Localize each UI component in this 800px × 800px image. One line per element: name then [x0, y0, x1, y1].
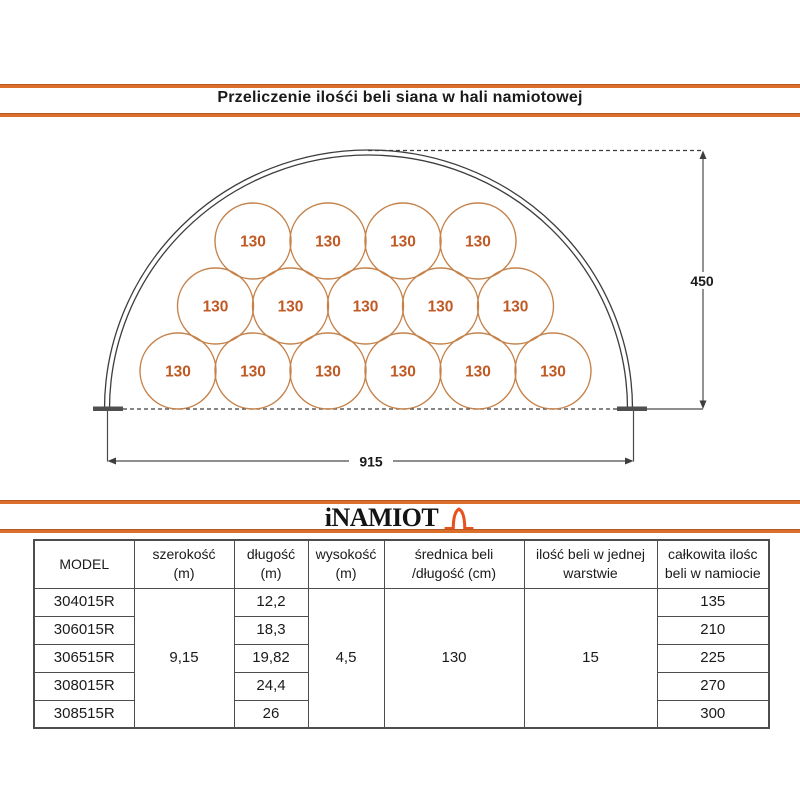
calkowita-cell: 300 — [657, 700, 769, 728]
header-line: beli w namiocie — [658, 564, 769, 583]
width-dimension-label: 915 — [359, 454, 383, 470]
table-row: 304015R 9,15 12,2 4,5 130 15 135 — [34, 588, 769, 616]
hay-bale-label: 130 — [240, 234, 266, 251]
header-line: wysokość — [309, 545, 384, 564]
height-dimension-label: 450 — [690, 273, 714, 289]
header-line: (m) — [309, 564, 384, 583]
srednica-merged-cell: 130 — [384, 588, 524, 728]
tent-cross-section-diagram: 450 915 13013013013013013013013013013013… — [0, 130, 800, 490]
ilosc-warstwa-merged-cell: 15 — [524, 588, 657, 728]
hay-bale-label: 130 — [203, 299, 229, 316]
col-header-wysokosc: wysokość (m) — [308, 540, 384, 588]
foundation-plate-right — [617, 407, 647, 412]
hay-bale-label: 130 — [503, 299, 529, 316]
hay-bale-label: 130 — [240, 364, 266, 381]
banner-rule-bottom — [0, 113, 800, 117]
wysokosc-merged-cell: 4,5 — [308, 588, 384, 728]
col-header-model: MODEL — [34, 540, 134, 588]
hay-bale-label: 130 — [315, 364, 341, 381]
calkowita-cell: 225 — [657, 644, 769, 672]
calkowita-cell: 135 — [657, 588, 769, 616]
logo-rule-bottom — [0, 529, 800, 533]
dlugosc-cell: 24,4 — [234, 672, 308, 700]
col-header-szerokosc: szerokość (m) — [134, 540, 234, 588]
dlugosc-cell: 12,2 — [234, 588, 308, 616]
szerokosc-merged-cell: 9,15 — [134, 588, 234, 728]
header-line: całkowita ilośc — [658, 545, 769, 564]
calkowita-cell: 270 — [657, 672, 769, 700]
header-line: szerokość — [135, 545, 234, 564]
banner-rule-top — [0, 84, 800, 88]
dlugosc-cell: 18,3 — [234, 616, 308, 644]
header-line: /długość (cm) — [385, 564, 524, 583]
hay-bale-label: 130 — [390, 234, 416, 251]
header-line: średnica beli — [385, 545, 524, 564]
model-cell: 308515R — [34, 700, 134, 728]
header-line: (m) — [135, 564, 234, 583]
table-header-row: MODEL szerokość (m) długość (m) wysokość… — [34, 540, 769, 588]
logo-text: iNAMIOT — [325, 505, 439, 531]
page-title: Przeliczenie ilośći beli siana w hali na… — [0, 89, 800, 107]
model-cell: 306015R — [34, 616, 134, 644]
calkowita-cell: 210 — [657, 616, 769, 644]
hay-bales-group: 1301301301301301301301301301301301301301… — [140, 203, 591, 409]
spec-table: MODEL szerokość (m) długość (m) wysokość… — [33, 539, 770, 729]
col-header-ilosc-warstwa: ilość beli w jednej warstwie — [524, 540, 657, 588]
model-cell: 306515R — [34, 644, 134, 672]
hay-bale-label: 130 — [165, 364, 191, 381]
logo: iNAMIOT — [0, 504, 800, 532]
width-dim-arrow-left — [108, 458, 117, 465]
hay-bale-label: 130 — [465, 364, 491, 381]
hay-bale-label: 130 — [540, 364, 566, 381]
dlugosc-cell: 19,82 — [234, 644, 308, 672]
hay-bale-label: 130 — [315, 234, 341, 251]
tent-arch-icon — [443, 506, 475, 531]
hay-bale-label: 130 — [390, 364, 416, 381]
width-dim-arrow-right — [625, 458, 634, 465]
col-header-dlugosc: długość (m) — [234, 540, 308, 588]
dlugosc-cell: 26 — [234, 700, 308, 728]
header-line: warstwie — [525, 564, 657, 583]
hay-bale-label: 130 — [428, 299, 454, 316]
col-header-calkowita: całkowita ilośc beli w namiocie — [657, 540, 769, 588]
foundation-plate-left — [93, 407, 123, 412]
header-line: ilość beli w jednej — [525, 545, 657, 564]
height-dim-arrow-top — [700, 151, 707, 160]
hay-bale-label: 130 — [353, 299, 379, 316]
hay-bale-label: 130 — [465, 234, 491, 251]
col-header-srednica: średnica beli /długość (cm) — [384, 540, 524, 588]
header-line: długość — [235, 545, 308, 564]
header-line: (m) — [235, 564, 308, 583]
model-cell: 304015R — [34, 588, 134, 616]
model-cell: 308015R — [34, 672, 134, 700]
hay-bale-label: 130 — [278, 299, 304, 316]
height-dim-arrow-bottom — [700, 401, 707, 410]
page: { "page": { "title": "Przeliczenie ilość… — [0, 0, 800, 800]
